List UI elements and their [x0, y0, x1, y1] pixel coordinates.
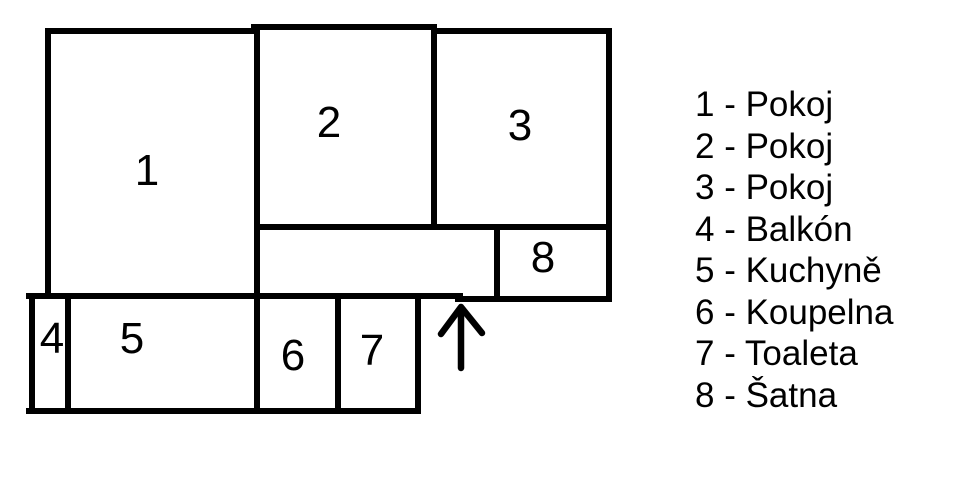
legend-item-5: 5 - Kuchyně	[695, 250, 893, 292]
floor-plan-screenshot: 1 2 3 4 5 6 7 8 1 - Pokoj 2 - Pokoj 3 - …	[0, 0, 966, 483]
walls	[29, 27, 609, 411]
room-1-label: 1	[135, 146, 159, 195]
room-8-label: 8	[531, 233, 555, 282]
legend-item-3: 3 - Pokoj	[695, 167, 893, 209]
room-4-label: 4	[40, 314, 64, 363]
room-3-label: 3	[508, 101, 532, 150]
legend-item-2: 2 - Pokoj	[695, 126, 893, 168]
room-number-labels: 1 2 3 4 5 6 7 8	[40, 98, 555, 380]
room-5-label: 5	[120, 314, 144, 363]
legend-item-4: 4 - Balkón	[695, 209, 893, 251]
legend-item-8: 8 - Šatna	[695, 375, 893, 417]
room-2-label: 2	[317, 98, 341, 147]
legend: 1 - Pokoj 2 - Pokoj 3 - Pokoj 4 - Balkón…	[695, 84, 893, 416]
legend-item-1: 1 - Pokoj	[695, 84, 893, 126]
legend-item-7: 7 - Toaleta	[695, 333, 893, 375]
room-6-label: 6	[281, 331, 305, 380]
room-7-label: 7	[360, 326, 384, 375]
entrance-up-arrow-icon	[441, 307, 482, 368]
legend-item-6: 6 - Koupelna	[695, 292, 893, 334]
